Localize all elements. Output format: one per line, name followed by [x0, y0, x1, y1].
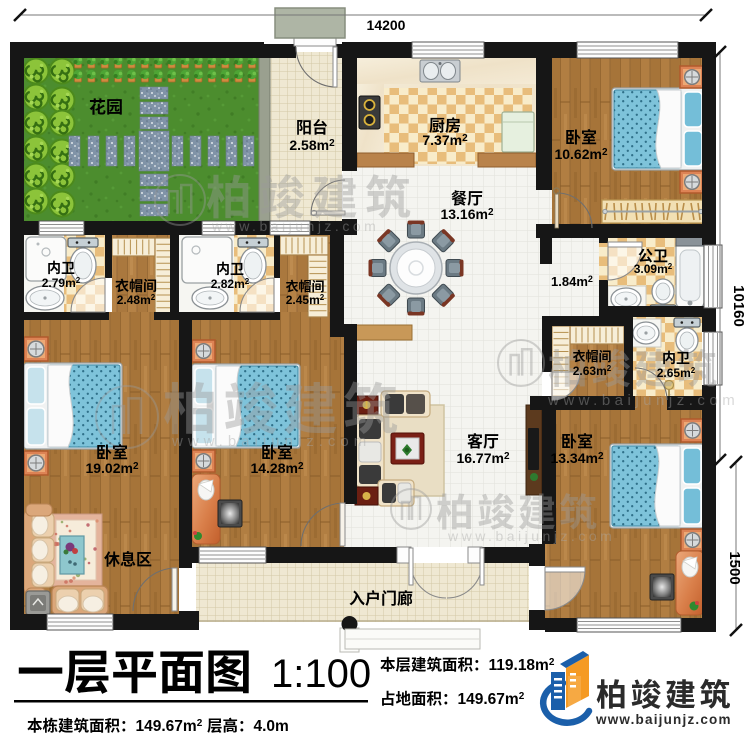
svg-text:16.77m2: 16.77m2 [456, 447, 509, 468]
svg-text:一层平面图: 一层平面图 [17, 634, 252, 703]
svg-text:3.09m2: 3.09m2 [634, 260, 673, 277]
svg-text:www.baijunjz.com: www.baijunjz.com [211, 218, 379, 234]
svg-text:19.02m2: 19.02m2 [85, 457, 138, 478]
svg-text:2.45m2: 2.45m2 [286, 291, 325, 308]
svg-text:www.baijunjz.com: www.baijunjz.com [447, 528, 615, 544]
svg-text:14200: 14200 [367, 17, 406, 33]
svg-text:柏竣建筑: 柏竣建筑 [596, 670, 734, 715]
svg-text:13.34m2: 13.34m2 [550, 447, 603, 468]
svg-text:www.baijunjz.com: www.baijunjz.com [595, 712, 732, 727]
svg-text:占地面积：149.67m2: 占地面积：149.67m2 [380, 687, 525, 709]
svg-text:13.16m2: 13.16m2 [440, 203, 493, 224]
svg-text:休息区: 休息区 [104, 546, 152, 570]
svg-text:2.79m2: 2.79m2 [42, 274, 81, 291]
svg-text:2.58m2: 2.58m2 [289, 134, 335, 155]
svg-text:7.37m2: 7.37m2 [422, 129, 468, 150]
svg-text:花园: 花园 [89, 93, 123, 118]
svg-text:1:100: 1:100 [271, 652, 371, 696]
svg-text:2.82m2: 2.82m2 [211, 275, 250, 292]
svg-text:10160: 10160 [730, 285, 747, 327]
svg-text:14.28m2: 14.28m2 [250, 457, 303, 478]
svg-text:2.65m2: 2.65m2 [657, 364, 696, 381]
svg-text:入户门廊: 入户门廊 [349, 585, 413, 609]
svg-text:本栋建筑面积：149.67m2: 本栋建筑面积：149.67m2 [27, 714, 203, 736]
svg-text:2.63m2: 2.63m2 [573, 362, 612, 379]
svg-text:2.48m2: 2.48m2 [117, 291, 156, 308]
svg-text:www.baijunjz.com: www.baijunjz.com [547, 392, 739, 409]
svg-text:10.62m2: 10.62m2 [554, 143, 607, 164]
svg-text:本层建筑面积：119.18m2: 本层建筑面积：119.18m2 [380, 653, 555, 675]
svg-text:1.84m2: 1.84m2 [551, 274, 593, 289]
svg-text:层高：4.0m: 层高：4.0m [207, 714, 289, 736]
svg-text:1500: 1500 [726, 551, 743, 584]
